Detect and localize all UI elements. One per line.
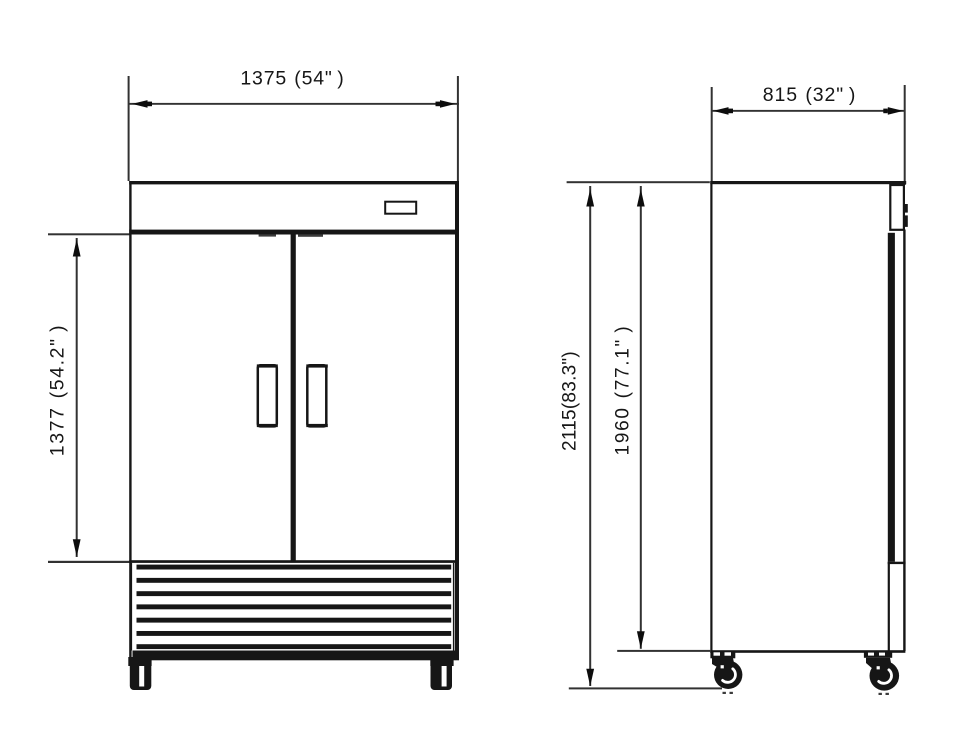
svg-text:2115(83.3"): 2115(83.3") — [560, 351, 581, 451]
svg-text:815 (32" ): 815 (32" ) — [763, 84, 857, 106]
svg-text:1377 (54.2" ): 1377 (54.2" ) — [47, 324, 69, 456]
svg-text:1960 (77.1" ): 1960 (77.1" ) — [613, 325, 634, 456]
svg-text:1375 (54" ): 1375 (54" ) — [240, 68, 344, 90]
